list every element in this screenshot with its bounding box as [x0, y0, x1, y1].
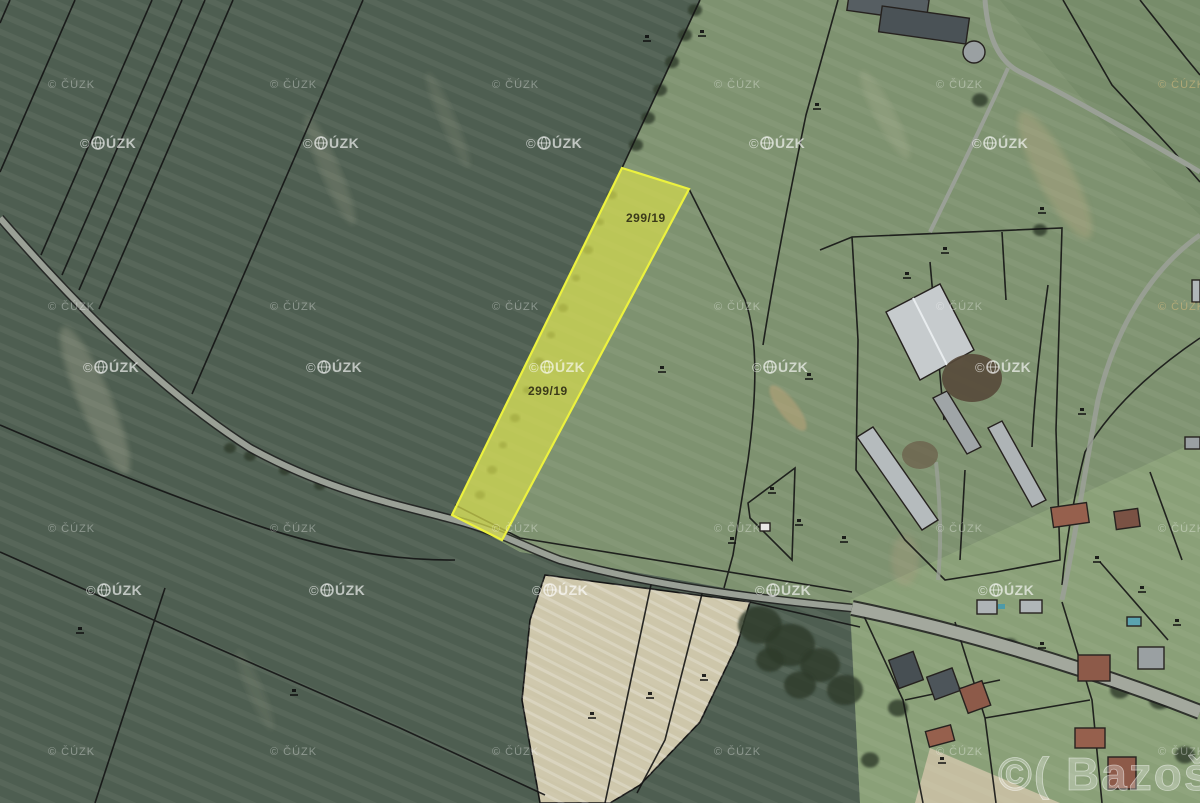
- cuzk-watermark-logo: ©ÚZK: [752, 358, 808, 375]
- parcel-mark-number: [290, 694, 298, 696]
- svg-text:©: ©: [975, 360, 985, 375]
- parcel-mark: [797, 519, 801, 522]
- cuzk-watermark-small: © ČÚZK: [714, 522, 761, 535]
- parcel-mark: [645, 35, 649, 38]
- parcel-mark: [590, 712, 594, 715]
- pool: [998, 604, 1005, 609]
- parcel-mark: [1040, 642, 1044, 645]
- svg-text:ÚZK: ÚZK: [109, 358, 139, 375]
- parcel-mark-number: [646, 697, 654, 699]
- parcel-mark: [1080, 408, 1084, 411]
- svg-text:ÚZK: ÚZK: [1001, 358, 1031, 375]
- tree: [784, 671, 816, 698]
- tree: [827, 675, 863, 706]
- parcel-mark: [1095, 556, 1099, 559]
- svg-text:©: ©: [755, 583, 765, 598]
- svg-text:ÚZK: ÚZK: [558, 581, 588, 598]
- cuzk-watermark-small: © ČÚZK: [492, 522, 539, 535]
- cuzk-watermark-small: © ČÚZK: [48, 522, 95, 535]
- svg-text:©: ©: [309, 583, 319, 598]
- cuzk-watermark-small: © ČÚZK: [270, 522, 317, 535]
- svg-text:©: ©: [86, 583, 96, 598]
- svg-text:ÚZK: ÚZK: [106, 134, 136, 151]
- silo: [963, 41, 985, 63]
- parcel-mark-number: [658, 371, 666, 373]
- parcel-mark: [943, 247, 947, 250]
- svg-text:ÚZK: ÚZK: [998, 134, 1028, 151]
- cuzk-watermark-small: © ČÚZK: [48, 745, 95, 758]
- parcel-mark: [1140, 586, 1144, 589]
- cuzk-watermark-small: © ČÚZK: [1158, 300, 1200, 313]
- cadastral-map-image[interactable]: 299/19 299/19 © ČÚZK© ČÚZK© ČÚZK© ČÚZK© …: [0, 0, 1200, 803]
- parcel-mark-number: [1173, 624, 1181, 626]
- parcel-mark-number: [840, 541, 848, 543]
- cuzk-watermark-small: © ČÚZK: [48, 78, 95, 91]
- parcel-mark-number: [1038, 647, 1046, 649]
- small-structure: [760, 523, 770, 531]
- cuzk-watermark-small: © ČÚZK: [492, 745, 539, 758]
- parcel-mark: [730, 537, 734, 540]
- cuzk-watermark-small: © ČÚZK: [714, 78, 761, 91]
- parcel-mark-number: [903, 277, 911, 279]
- svg-text:ÚZK: ÚZK: [555, 358, 585, 375]
- parcel-mark: [905, 272, 909, 275]
- svg-text:ÚZK: ÚZK: [552, 134, 582, 151]
- svg-text:ÚZK: ÚZK: [1004, 581, 1034, 598]
- cuzk-watermark-logo: ©ÚZK: [749, 134, 805, 151]
- parcel-mark: [660, 366, 664, 369]
- cuzk-watermark-logo: ©ÚZK: [83, 358, 139, 375]
- cuzk-watermark-small: © ČÚZK: [48, 300, 95, 313]
- parcel-mark-number: [1038, 212, 1046, 214]
- house-roof: [1020, 600, 1042, 613]
- svg-text:©: ©: [972, 136, 982, 151]
- parcel-mark: [648, 692, 652, 695]
- parcel-mark: [842, 536, 846, 539]
- cuzk-watermark-logo: ©ÚZK: [306, 358, 362, 375]
- parcel-mark: [78, 627, 82, 630]
- parcel-number-label: 299/19: [528, 384, 568, 398]
- cuzk-watermark-small: © ČÚZK: [492, 300, 539, 313]
- svg-text:ÚZK: ÚZK: [778, 358, 808, 375]
- cuzk-watermark-logo: ©ÚZK: [303, 134, 359, 151]
- house-roof-red: [1075, 728, 1105, 748]
- cuzk-watermark-logo: ©ÚZK: [529, 358, 585, 375]
- house-roof: [1138, 647, 1164, 669]
- dirt-yard: [902, 441, 938, 469]
- svg-text:©: ©: [306, 360, 316, 375]
- svg-text:ÚZK: ÚZK: [112, 581, 142, 598]
- svg-text:©: ©: [529, 360, 539, 375]
- svg-text:©: ©: [752, 360, 762, 375]
- parcel-mark: [770, 487, 774, 490]
- svg-text:ÚZK: ÚZK: [775, 134, 805, 151]
- tree: [972, 93, 988, 107]
- house-roof-red: [1078, 655, 1110, 681]
- cuzk-watermark-small: © ČÚZK: [1158, 522, 1200, 535]
- cuzk-watermark-small: © ČÚZK: [714, 745, 761, 758]
- cuzk-watermark-logo: ©ÚZK: [80, 134, 136, 151]
- cuzk-watermark-logo: ©ÚZK: [532, 581, 588, 598]
- building-partial: [1192, 280, 1200, 302]
- cuzk-watermark-logo: ©ÚZK: [755, 581, 811, 598]
- parcel-mark-number: [1138, 591, 1146, 593]
- parcel-mark-number: [1078, 413, 1086, 415]
- parcel-mark-number: [941, 252, 949, 254]
- parcel-mark-number: [1093, 561, 1101, 563]
- parcel-mark-number: [805, 378, 813, 380]
- cuzk-watermark-logo: ©ÚZK: [972, 134, 1028, 151]
- svg-text:ÚZK: ÚZK: [781, 581, 811, 598]
- cuzk-watermark-small: © ČÚZK: [936, 522, 983, 535]
- map-canvas: 299/19 299/19 © ČÚZK© ČÚZK© ČÚZK© ČÚZK© …: [0, 0, 1200, 803]
- cuzk-watermark-small: © ČÚZK: [936, 78, 983, 91]
- parcel-mark-number: [938, 762, 946, 764]
- pool: [1127, 617, 1141, 626]
- cuzk-watermark-small: © ČÚZK: [936, 300, 983, 313]
- svg-text:ÚZK: ÚZK: [335, 581, 365, 598]
- parcel-mark-number: [813, 108, 821, 110]
- tree: [224, 443, 236, 453]
- cuzk-watermark-small: © ČÚZK: [270, 745, 317, 758]
- cuzk-watermark-logo: ©ÚZK: [309, 581, 365, 598]
- svg-text:©: ©: [749, 136, 759, 151]
- svg-text:©: ©: [978, 583, 988, 598]
- svg-text:©: ©: [526, 136, 536, 151]
- svg-text:ÚZK: ÚZK: [332, 358, 362, 375]
- parcel-mark-number: [728, 542, 736, 544]
- svg-text:©: ©: [303, 136, 313, 151]
- parcel-mark-number: [768, 492, 776, 494]
- parcel-mark: [700, 30, 704, 33]
- cuzk-watermark-logo: ©ÚZK: [975, 358, 1031, 375]
- cuzk-watermark-logo: ©ÚZK: [526, 134, 582, 151]
- parcel-mark: [1040, 207, 1044, 210]
- cuzk-watermark-small: © ČÚZK: [270, 300, 317, 313]
- cuzk-watermark-logo: ©ÚZK: [86, 581, 142, 598]
- parcel-mark-number: [698, 35, 706, 37]
- tree: [861, 752, 879, 767]
- house-roof-red: [1051, 503, 1089, 528]
- house-roof: [977, 600, 997, 614]
- parcel-mark-number: [643, 40, 651, 42]
- cuzk-watermark-small: © ČÚZK: [714, 300, 761, 313]
- svg-text:©: ©: [80, 136, 90, 151]
- tree: [1033, 224, 1047, 236]
- svg-text:©: ©: [532, 583, 542, 598]
- parcel-mark: [1175, 619, 1179, 622]
- parcel-mark-number: [700, 679, 708, 681]
- cuzk-watermark-small: © ČÚZK: [1158, 78, 1200, 91]
- house-roof: [1185, 437, 1200, 449]
- cuzk-watermark-small: © ČÚZK: [270, 78, 317, 91]
- cuzk-watermark-logo: ©ÚZK: [978, 581, 1034, 598]
- parcel-mark: [815, 103, 819, 106]
- parcel-mark-number: [76, 632, 84, 634]
- parcel-mark-number: [588, 717, 596, 719]
- parcel-mark-number: [795, 524, 803, 526]
- cuzk-watermark-small: © ČÚZK: [492, 78, 539, 91]
- house-roof-red: [1114, 508, 1140, 529]
- brand-watermark-bazos: ©( Bazoš.cz: [998, 748, 1200, 800]
- tree: [756, 648, 784, 672]
- svg-text:ÚZK: ÚZK: [329, 134, 359, 151]
- cuzk-watermark-small: © ČÚZK: [936, 745, 983, 758]
- parcel-number-label: 299/19: [626, 211, 666, 225]
- parcel-mark: [702, 674, 706, 677]
- parcel-mark: [292, 689, 296, 692]
- svg-text:©: ©: [83, 360, 93, 375]
